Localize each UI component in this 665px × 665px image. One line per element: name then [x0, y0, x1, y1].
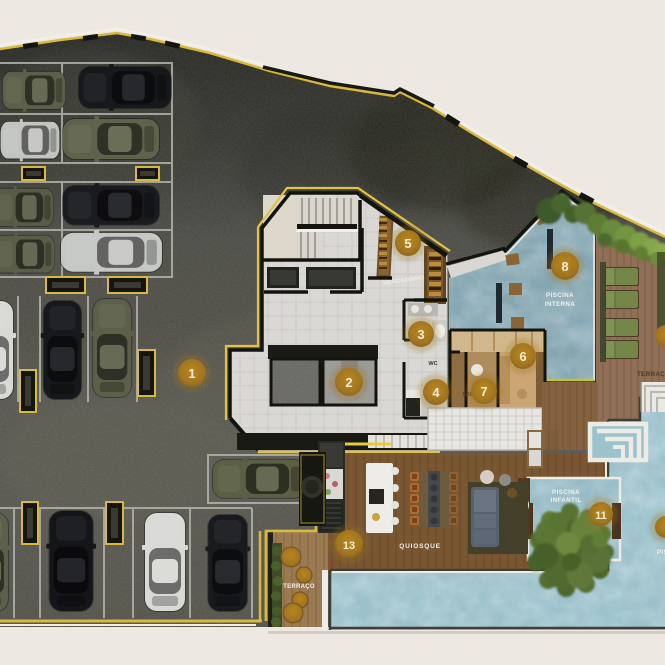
svg-text:7: 7 [480, 384, 487, 399]
svg-text:5: 5 [404, 236, 411, 251]
svg-text:TERRAÇO: TERRAÇO [283, 584, 315, 590]
svg-text:INFANTIL: INFANTIL [550, 497, 581, 504]
svg-text:8: 8 [561, 259, 568, 274]
svg-text:3: 3 [417, 327, 424, 342]
svg-text:PISCINA: PISCINA [546, 292, 574, 299]
svg-text:13: 13 [343, 540, 355, 552]
svg-text:6: 6 [519, 349, 526, 364]
svg-text:PISCINA: PISCINA [552, 489, 580, 496]
svg-text:QUIOSQUE: QUIOSQUE [399, 543, 440, 550]
svg-text:TERRAÇO: TERRAÇO [637, 371, 665, 378]
svg-text:INTERNA: INTERNA [545, 301, 575, 308]
svg-text:11: 11 [595, 510, 607, 522]
svg-text:1: 1 [188, 366, 195, 381]
svg-text:2: 2 [345, 375, 352, 390]
svg-text:WC: WC [428, 361, 437, 367]
svg-text:PISCINA: PISCINA [657, 549, 665, 556]
svg-text:4: 4 [432, 385, 440, 400]
